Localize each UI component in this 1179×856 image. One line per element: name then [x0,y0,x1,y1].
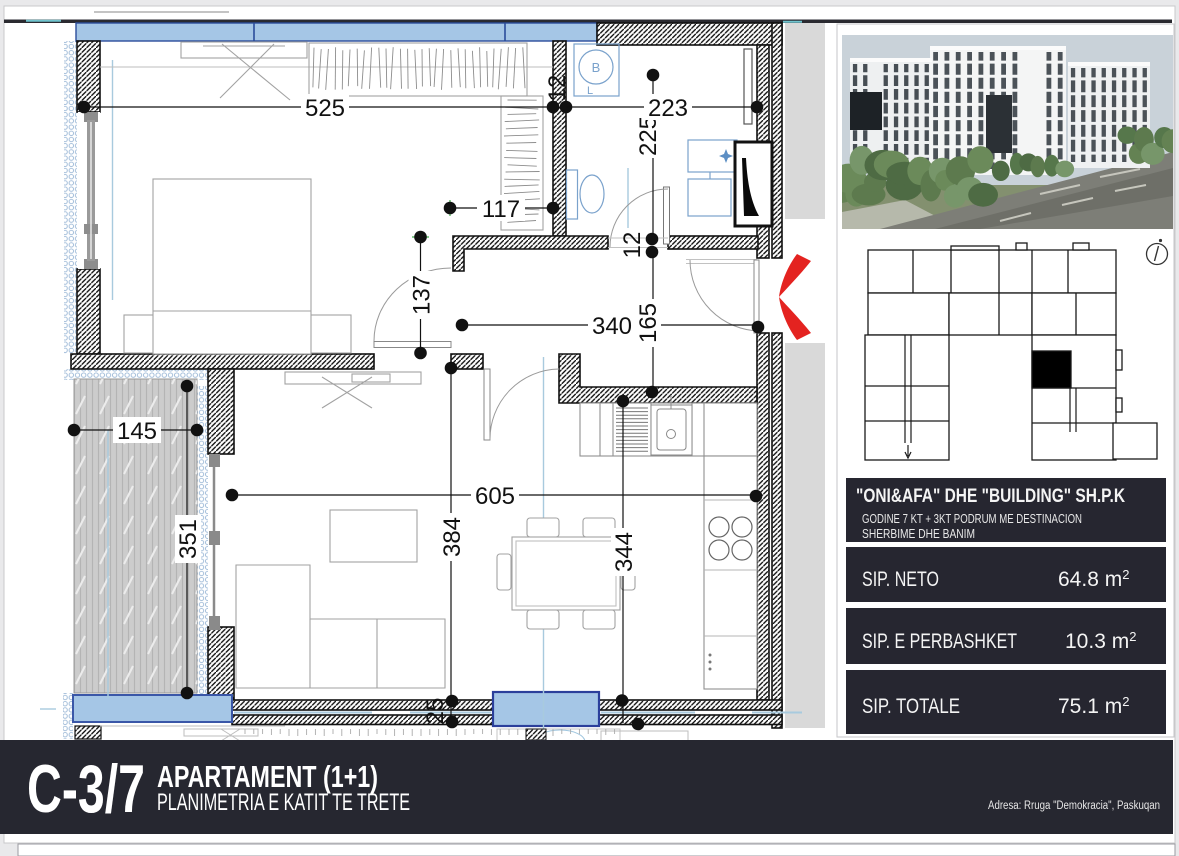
svg-text:"ONI&AFA" DHE "BUILDING" SH.P.: "ONI&AFA" DHE "BUILDING" SH.P.K [856,486,1125,507]
svg-text:PLANIMETRIA E KATIT TE TRETE: PLANIMETRIA E KATIT TE TRETE [157,789,410,816]
svg-text:C-3/7: C-3/7 [27,751,145,827]
svg-text:Adresa: Rruga "Demokracia", Pa: Adresa: Rruga "Demokracia", Paskuqan [988,800,1160,812]
svg-text:SIP. E PERBASHKET: SIP. E PERBASHKET [862,630,1017,653]
svg-text:SIP. TOTALE: SIP. TOTALE [862,695,960,718]
svg-text:384: 384 [439,517,466,557]
svg-text:L: L [587,85,593,97]
svg-text:137: 137 [409,275,436,315]
svg-text:145: 145 [117,418,157,445]
svg-text:223: 223 [648,95,688,122]
svg-text:SIP. NETO: SIP. NETO [862,568,939,591]
svg-text:GODINE 7 KT + 3KT PODRUM ME DE: GODINE 7 KT + 3KT PODRUM ME DESTINACION [862,512,1082,526]
svg-text:12: 12 [619,232,646,259]
svg-text:525: 525 [305,95,345,122]
svg-text:605: 605 [475,483,515,510]
svg-text:64.8 m2: 64.8 m2 [1058,567,1129,591]
svg-text:344: 344 [611,532,638,572]
svg-text:10.3 m2: 10.3 m2 [1065,629,1136,653]
svg-text:B: B [592,60,601,75]
svg-text:25: 25 [422,698,449,725]
svg-text:SHERBIME DHE BANIM: SHERBIME DHE BANIM [862,527,975,541]
svg-text:165: 165 [635,303,662,343]
svg-text:340: 340 [592,313,632,340]
svg-text:75.1 m2: 75.1 m2 [1058,694,1129,718]
svg-text:117: 117 [482,196,520,223]
svg-text:351: 351 [175,519,202,559]
svg-text:12: 12 [544,75,571,102]
